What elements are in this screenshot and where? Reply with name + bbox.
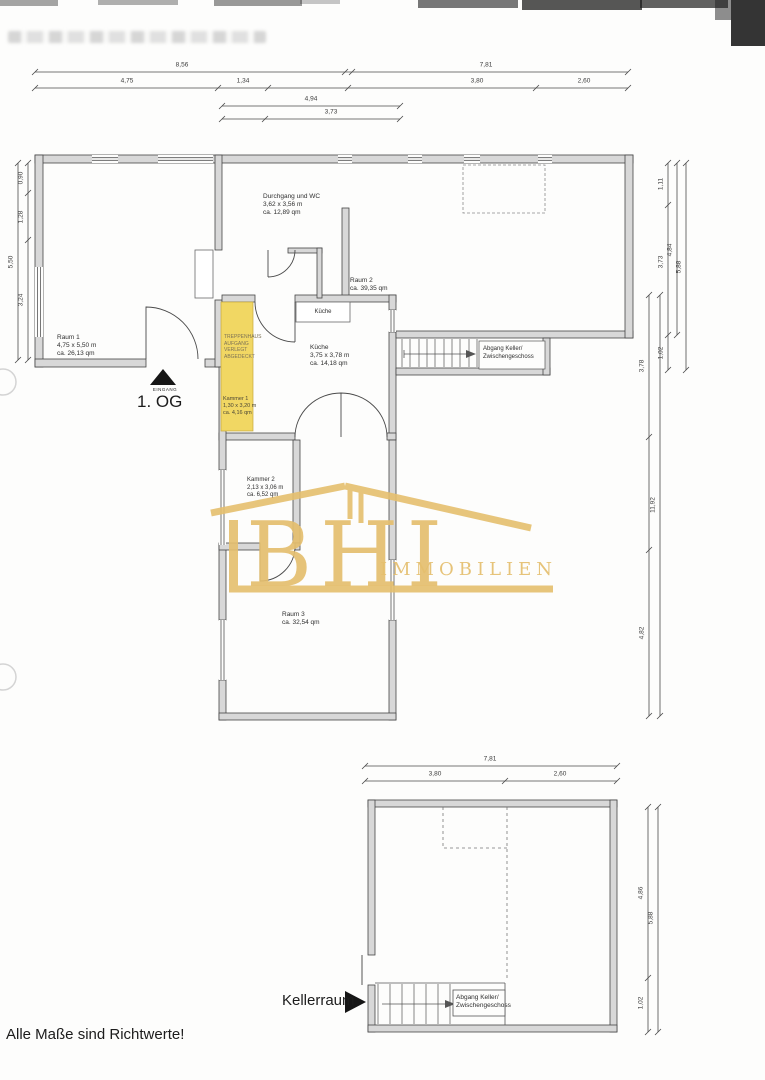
abgang-og-line1: Abgang Keller/ <box>483 346 534 354</box>
kammer1-dims: 1,30 x 3,20 m <box>223 403 256 410</box>
dim-og-top-seg3: 3,80 <box>471 78 484 85</box>
raum1-name: Raum 1 <box>57 334 96 342</box>
abgang-keller-label: Abgang Keller/ Zwischengeschoss <box>456 994 511 1010</box>
raum1-dims: 4,75 x 5,50 m <box>57 342 96 350</box>
kammer1-note-line4: ABGEDECKT <box>224 354 262 361</box>
dim-og-right-total: 5,88 <box>676 261 683 274</box>
raum1-label: Raum 1 4,75 x 5,50 m ca. 26,13 qm <box>57 334 96 358</box>
og-walls <box>35 155 633 720</box>
raum3-label: Raum 3 ca. 32,54 qm <box>282 611 320 627</box>
kueche-counter-label: Küche <box>296 308 350 316</box>
kueche-label: Küche 3,75 x 3,78 m ca. 14,18 qm <box>310 344 349 368</box>
abgang-keller-line2: Zwischengeschoss <box>456 1002 511 1010</box>
abgang-og-line2: Zwischengeschoss <box>483 354 534 362</box>
kammer1-note-line1: TREPPENHAUS <box>224 334 262 341</box>
raum3-area: ca. 32,54 qm <box>282 619 320 627</box>
kammer2-name: Kammer 2 <box>247 477 283 485</box>
dim-og-right-seg3: 1,02 <box>658 347 665 360</box>
kammer1-note: TREPPENHAUS AUFGANG VERLEGT ABGEDECKT <box>224 334 262 360</box>
durchgang-dims: 3,62 x 3,56 m <box>263 201 320 209</box>
kueche-area: ca. 14,18 qm <box>310 360 349 368</box>
dim-og-top-total-left: 8,56 <box>176 62 189 69</box>
keller-interior <box>362 807 507 1025</box>
dim-og-wing-seg2: 4,82 <box>639 627 646 640</box>
kammer1-name: Kammer 1 <box>223 396 256 403</box>
dim-og-wing-total: 11,92 <box>650 497 657 513</box>
durchgang-area: ca. 12,89 qm <box>263 209 320 217</box>
abgang-keller-line1: Abgang Keller/ <box>456 994 511 1002</box>
dim-keller-top-seg2: 2,60 <box>554 771 567 778</box>
dim-og-top-seg4: 2,60 <box>578 78 591 85</box>
entrance-arrow-icon <box>150 369 176 385</box>
hole-punch-marks <box>0 369 16 690</box>
raum2-area: ca. 39,35 qm <box>350 285 388 293</box>
floor-label-og: 1. OG <box>137 392 182 412</box>
kammer1-label: Kammer 1 1,30 x 3,20 m ca. 4,16 qm <box>223 396 256 417</box>
raum3-name: Raum 3 <box>282 611 320 619</box>
faded-header-artifact <box>8 31 266 43</box>
durchgang-label: Durchgang und WC 3,62 x 3,56 m ca. 12,89… <box>263 193 320 217</box>
kellerraum-label: Kellerraum <box>282 992 355 1009</box>
dim-og-mid-total: 4,94 <box>305 96 318 103</box>
dim-og-wing-seg1: 3,78 <box>639 360 646 373</box>
kammer2-label: Kammer 2 2,13 x 3,06 m ca. 6,52 qm <box>247 477 283 500</box>
dim-keller-right-total: 5,88 <box>648 912 655 925</box>
dim-og-top-seg1: 4,75 <box>121 78 134 85</box>
dim-keller-top-total: 7,81 <box>484 756 497 763</box>
raum1-area: ca. 26,13 qm <box>57 350 96 358</box>
footer-note: Alle Maße sind Richtwerte! <box>6 1026 184 1043</box>
dim-og-left-seg3: 3,24 <box>18 294 25 307</box>
scanned-floorplan-page: BHI IMMOBILIEN 8,56 7,81 4,75 1,34 3,80 … <box>0 0 765 1080</box>
dim-og-left-seg1: 0,90 <box>18 172 25 185</box>
bhi-logo-word: IMMOBILIEN <box>380 559 557 580</box>
dim-og-top-total-right: 7,81 <box>480 62 493 69</box>
dim-og-top-seg2: 1,34 <box>237 78 250 85</box>
dim-og-left-total: 5,50 <box>8 256 15 269</box>
kammer1-area: ca. 4,16 qm <box>223 410 256 417</box>
bhi-logo-initials: BHI <box>246 511 450 601</box>
dim-keller-right-seg1: 4,86 <box>638 887 645 900</box>
abgang-og-label: Abgang Keller/ Zwischengeschoss <box>483 346 534 361</box>
dim-og-right-sub: 4,84 <box>667 244 674 257</box>
kueche-name: Küche <box>310 344 349 352</box>
dim-keller-right-seg2: 1,02 <box>638 997 645 1010</box>
durchgang-name: Durchgang und WC <box>263 193 320 201</box>
kammer2-area: ca. 6,52 qm <box>247 492 283 500</box>
kueche-dims: 3,75 x 3,78 m <box>310 352 349 360</box>
kammer2-dims: 2,13 x 3,06 m <box>247 485 283 493</box>
dim-og-mid-seg: 3,73 <box>325 109 338 116</box>
dim-keller-top-seg1: 3,80 <box>429 771 442 778</box>
dim-og-left-seg2: 1,28 <box>18 211 25 224</box>
dim-og-right-seg2: 3,73 <box>658 256 665 269</box>
dim-og-right-seg1: 1,11 <box>658 178 665 190</box>
raum2-label: Raum 2 ca. 39,35 qm <box>350 277 388 293</box>
raum2-name: Raum 2 <box>350 277 388 285</box>
